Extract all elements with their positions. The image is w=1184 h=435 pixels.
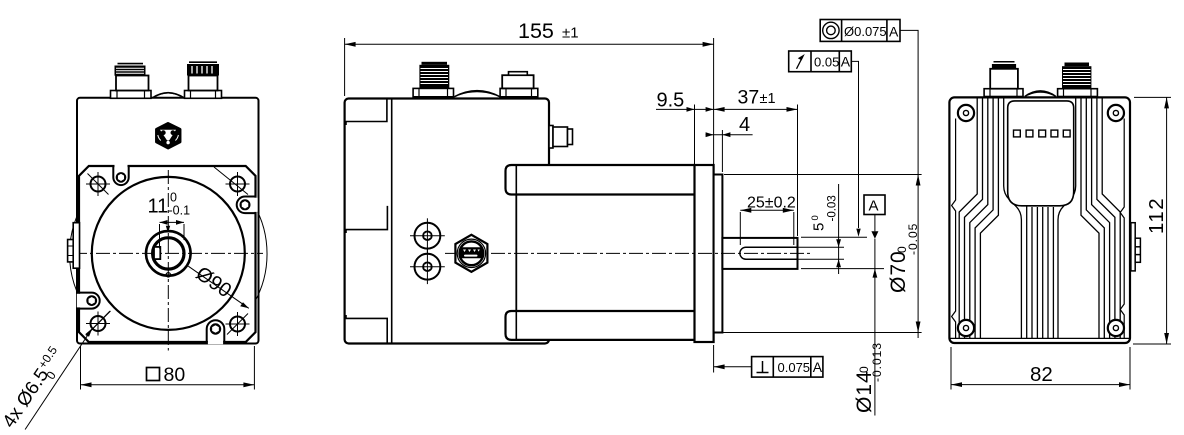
- svg-text:11: 11: [148, 196, 169, 218]
- svg-text:A: A: [841, 54, 851, 70]
- svg-text:9.5: 9.5: [657, 89, 685, 111]
- svg-text:80: 80: [164, 364, 186, 386]
- svg-text:0.075: 0.075: [778, 360, 811, 375]
- svg-text:±1: ±1: [562, 25, 579, 42]
- svg-text:0.05: 0.05: [814, 54, 839, 69]
- svg-text:25±0.2: 25±0.2: [747, 194, 796, 211]
- svg-text:0: 0: [170, 191, 177, 205]
- svg-text:112: 112: [1145, 197, 1168, 234]
- svg-text:-0.1: -0.1: [169, 204, 191, 218]
- svg-text:4: 4: [739, 114, 750, 136]
- svg-text:Ø0.075: Ø0.075: [844, 24, 887, 39]
- svg-text:A: A: [869, 198, 879, 215]
- svg-text:A: A: [889, 23, 899, 39]
- svg-text:82: 82: [1030, 363, 1053, 386]
- svg-text:37: 37: [738, 86, 760, 108]
- svg-text:±1: ±1: [760, 91, 776, 107]
- svg-text:A: A: [813, 359, 823, 375]
- svg-text:155: 155: [518, 19, 554, 43]
